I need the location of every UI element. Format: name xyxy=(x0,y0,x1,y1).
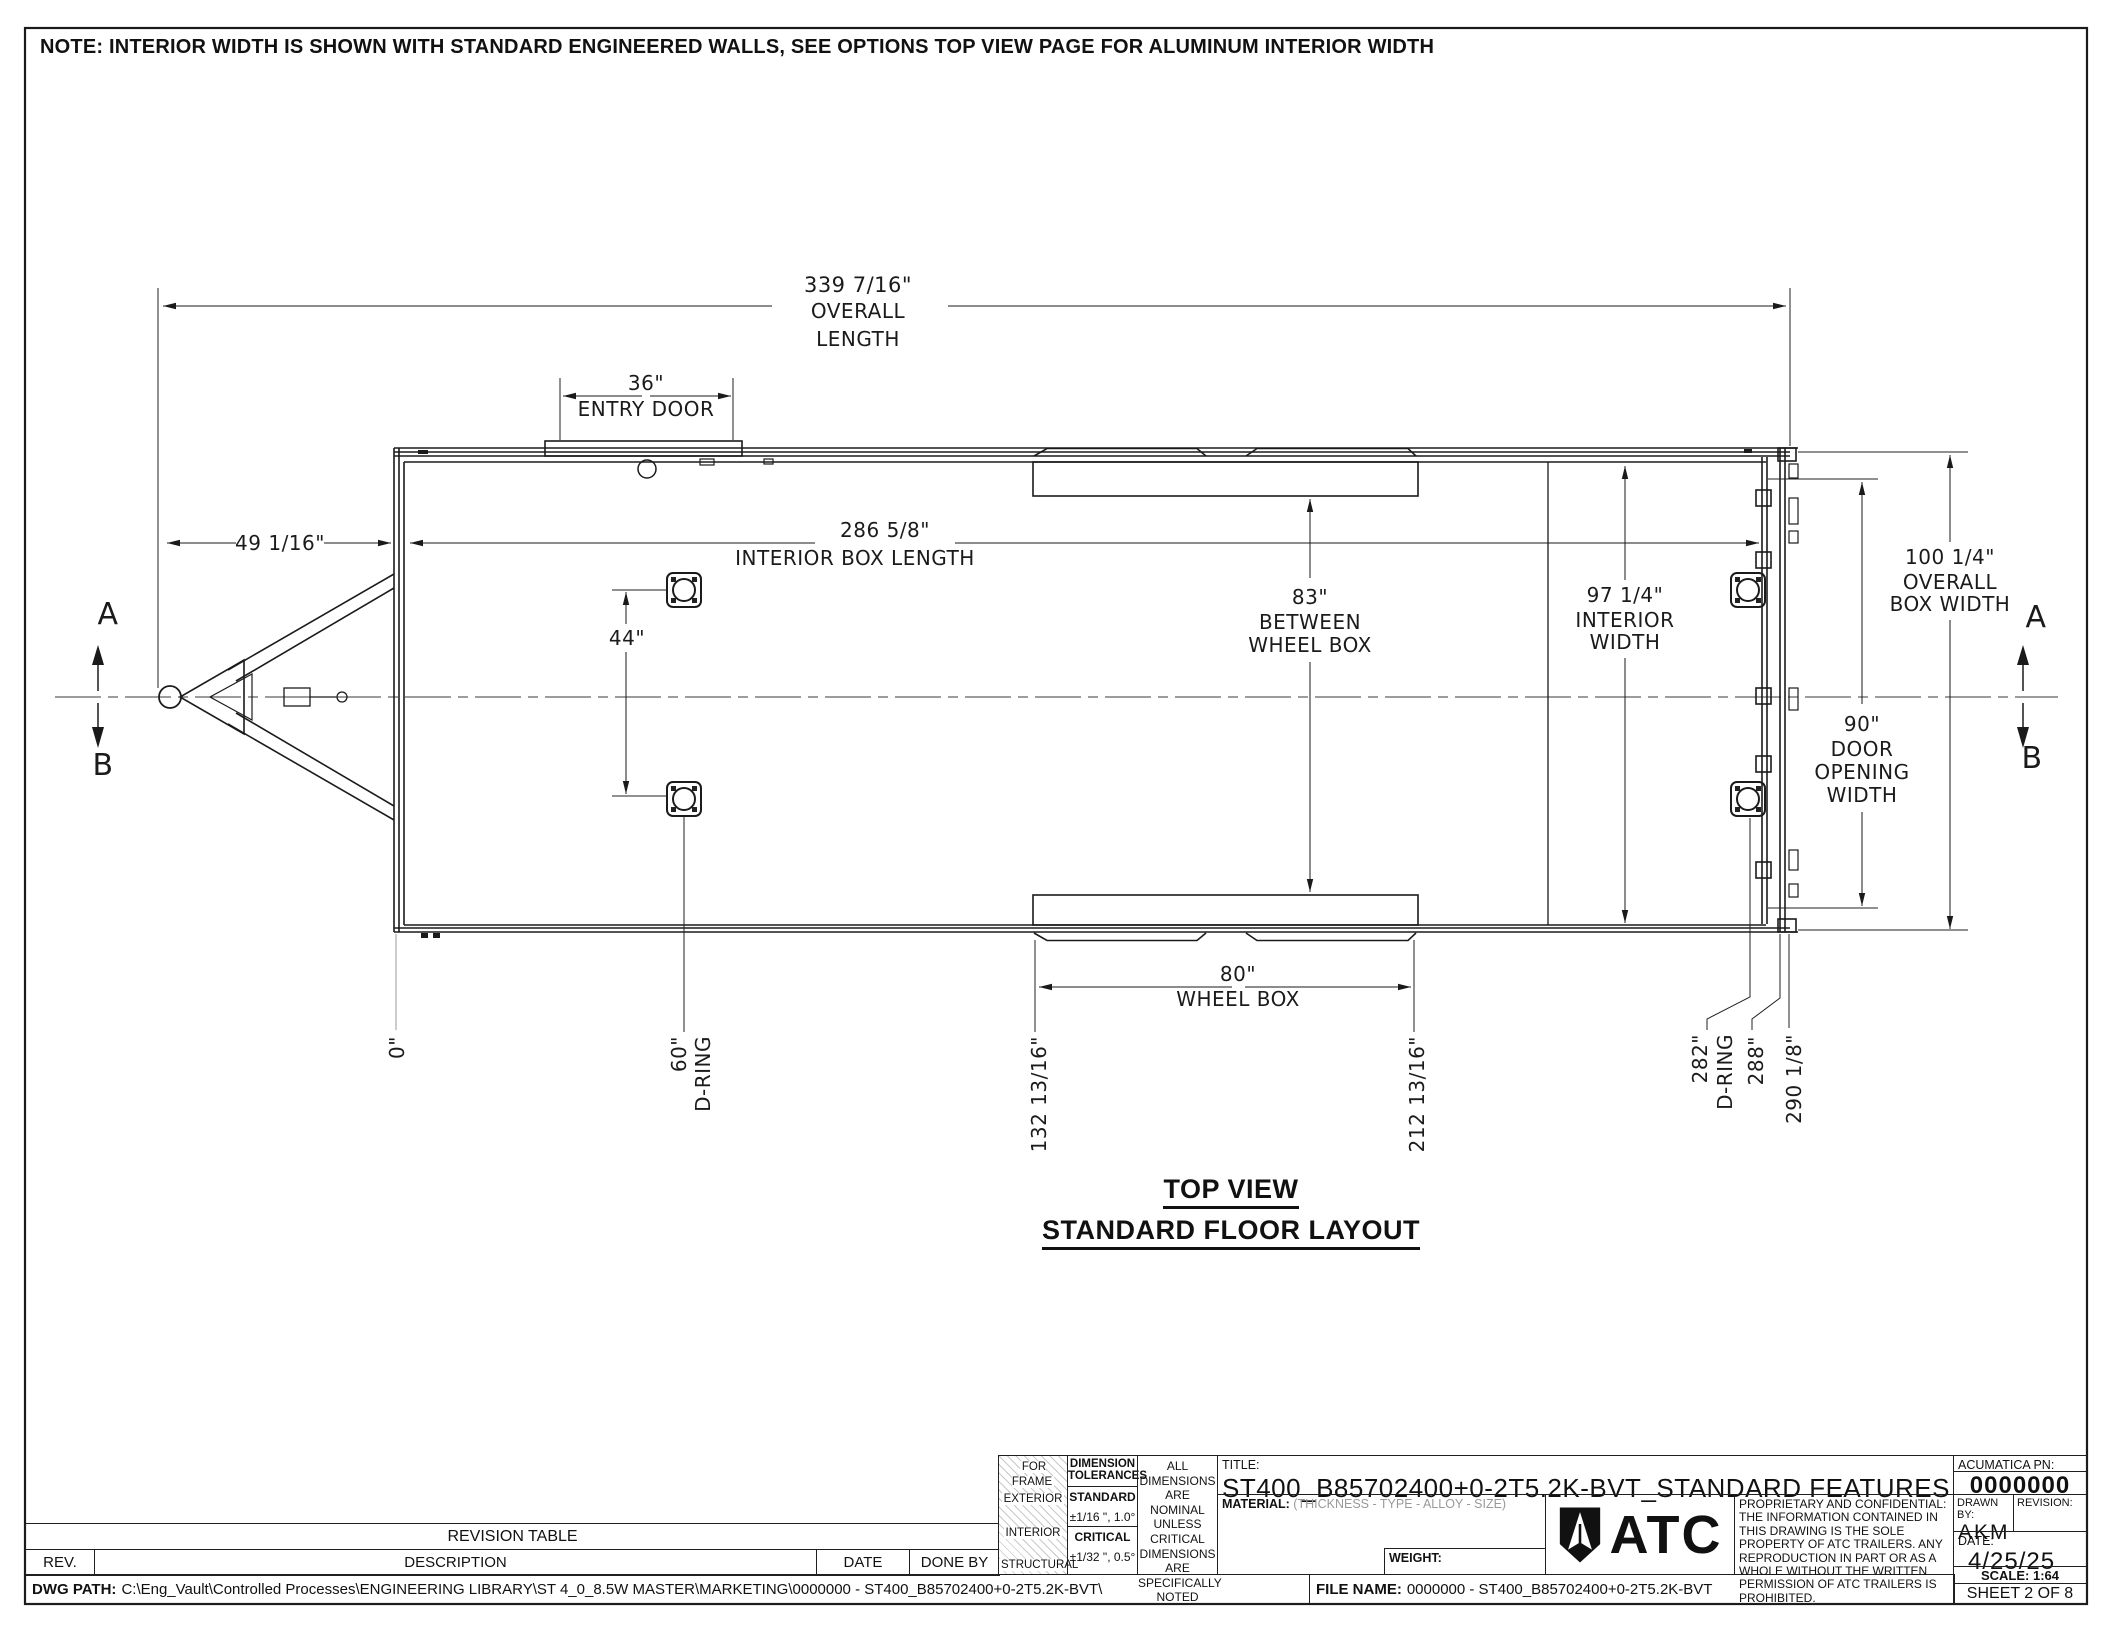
frame-finish-column: FOR FRAME EXTERIOR INTERIOR STRUCTURAL xyxy=(998,1455,1068,1575)
scale-cell: SCALE: 1:64 xyxy=(1953,1566,2087,1584)
dim-door-opening-label1: DOOR xyxy=(1831,737,1894,761)
dwg-path-value: C:\Eng_Vault\Controlled Processes\ENGINE… xyxy=(121,1581,1102,1598)
wheel-boxes xyxy=(1033,449,1418,941)
section-a-label: A xyxy=(97,597,118,632)
dim-dring-span-value: 44" xyxy=(609,626,645,650)
tolerance-standard-label: STANDARD xyxy=(1068,1487,1137,1507)
dim-overall-width-label1: OVERALL xyxy=(1903,570,1998,594)
title-label: TITLE: xyxy=(1218,1456,1953,1472)
sheet-number-cell: SHEET 2 OF 8 xyxy=(1953,1583,2087,1604)
trailer-body xyxy=(394,448,1798,932)
station-dring-rear-label: D-RING xyxy=(1713,1034,1737,1110)
d-ring-icon xyxy=(667,782,701,816)
d-ring-icon xyxy=(1731,782,1765,816)
dim-interior-width-value: 97 1/4" xyxy=(1587,583,1664,607)
section-a-label: A xyxy=(2025,600,2046,635)
dim-overall-width-value: 100 1/4" xyxy=(1905,545,1995,569)
dim-overall-length-label1: OVERALL xyxy=(811,299,906,323)
dim-between-wheelbox-label2: WHEEL BOX xyxy=(1248,633,1372,657)
revision-col-description: DESCRIPTION xyxy=(94,1549,817,1576)
dim-between-wheelbox-value: 83" xyxy=(1292,585,1328,609)
entry-door xyxy=(545,441,773,478)
station-wheelbox-front-label: 132 13/16" xyxy=(1027,1036,1051,1152)
atc-logo-text: ATC xyxy=(1610,1504,1723,1566)
revision-table-title: REVISION TABLE xyxy=(25,1523,1000,1550)
view-title-line1: TOP VIEW xyxy=(1163,1174,1298,1209)
sheet-note: NOTE: INTERIOR WIDTH IS SHOWN WITH STAND… xyxy=(40,36,1434,59)
revision-label: REVISION: xyxy=(2014,1495,2086,1509)
tolerances-column: DIMENSION TOLERANCES STANDARD ±1/16 ", 1… xyxy=(1067,1455,1138,1575)
view-title: TOP VIEW STANDARD FLOOR LAYOUT xyxy=(1031,1174,1431,1250)
extension-lines xyxy=(158,288,1968,1032)
revision-cell: REVISION: xyxy=(2013,1494,2087,1532)
nominal-note-cell: ALL DIMENSIONS ARE NOMINAL UNLESS CRITIC… xyxy=(1137,1455,1218,1575)
dim-interior-width-label2: WIDTH xyxy=(1590,630,1661,654)
drawing-sheet: A B A B 339 7/16" OVERALL LENGTH 36" ENT… xyxy=(0,0,2112,1632)
atc-shield-icon xyxy=(1558,1505,1602,1565)
section-markers: A B A B xyxy=(92,597,2047,783)
drawn-by-cell: DRAWN BY: AKM xyxy=(1953,1494,2014,1532)
dimension-lines xyxy=(163,306,1950,987)
frame-interior-label: INTERIOR xyxy=(1004,1527,1063,1539)
view-title-line2: STANDARD FLOOR LAYOUT xyxy=(1042,1215,1420,1250)
tolerance-critical-label: CRITICAL xyxy=(1068,1527,1137,1547)
dim-interior-width-label1: INTERIOR xyxy=(1575,608,1674,632)
station-zero-label: 0" xyxy=(385,1036,409,1059)
date-cell: DATE: 4/25/25 xyxy=(1953,1531,2087,1567)
station-labels: 0" 60" D-RING 132 13/16" 212 13/16" 282"… xyxy=(385,1034,1806,1152)
for-frame-label: FOR FRAME xyxy=(1012,1461,1054,1488)
dim-entry-door-value: 36" xyxy=(628,371,664,395)
logo-cell: ATC xyxy=(1545,1494,1735,1575)
dim-overall-length-label2: LENGTH xyxy=(816,327,900,351)
d-ring-icon xyxy=(667,573,701,607)
dwg-path-label: DWG PATH: xyxy=(32,1581,116,1598)
dim-door-opening-label3: WIDTH xyxy=(1827,783,1898,807)
dim-between-wheelbox-label1: BETWEEN xyxy=(1259,610,1361,634)
station-288-label: 288" xyxy=(1744,1036,1768,1085)
dim-wheelbox-value: 80" xyxy=(1220,962,1256,986)
dim-overall-width-label2: BOX WIDTH xyxy=(1890,592,2011,616)
dim-tongue-value: 49 1/16" xyxy=(235,531,325,555)
dim-overall-length-value: 339 7/16" xyxy=(804,273,912,297)
dim-interior-length-label: INTERIOR BOX LENGTH xyxy=(735,546,975,570)
section-b-label: B xyxy=(2021,741,2042,776)
dim-entry-door-label: ENTRY DOOR xyxy=(578,397,715,421)
proprietary-cell: PROPRIETARY AND CONFIDENTIAL: THE INFORM… xyxy=(1734,1494,1954,1575)
drawn-by-label: DRAWN BY: xyxy=(1954,1495,2013,1521)
dim-door-opening-label2: OPENING xyxy=(1814,760,1909,784)
dim-door-opening-value: 90" xyxy=(1844,712,1880,736)
trailer-top-view-drawing: A B A B 339 7/16" OVERALL LENGTH 36" ENT… xyxy=(0,0,2112,1632)
acumatica-label: ACUMATICA PN: xyxy=(1953,1455,2087,1472)
revision-col-done-by: DONE BY xyxy=(909,1549,1000,1576)
file-name-label: FILE NAME: xyxy=(1316,1581,1402,1598)
material-label: MATERIAL: xyxy=(1222,1497,1290,1511)
revision-col-date: DATE xyxy=(816,1549,910,1576)
dimension-labels: 339 7/16" OVERALL LENGTH 36" ENTRY DOOR … xyxy=(235,273,2010,1011)
tolerance-standard-value: ±1/16 ", 1.0° xyxy=(1068,1507,1137,1527)
dim-interior-length-value: 286 5/8" xyxy=(840,518,930,542)
acumatica-value: 0000000 xyxy=(1953,1471,2087,1495)
station-290-label: 290 1/8" xyxy=(1782,1034,1806,1124)
station-dring-front-value: 60" xyxy=(667,1036,691,1072)
material-value: (THICKNESS - TYPE - ALLOY - SIZE) xyxy=(1293,1497,1506,1511)
tolerances-header: DIMENSION TOLERANCES xyxy=(1068,1456,1137,1487)
date-label: DATE: xyxy=(1954,1532,2086,1548)
dwg-path-cell: DWG PATH: C:\Eng_Vault\Controlled Proces… xyxy=(25,1574,1310,1604)
file-name-value: 0000000 - ST400_B85702400+0-2T5.2K-BVT xyxy=(1407,1581,1713,1598)
sheet-border xyxy=(25,28,2087,1604)
d-ring-icon xyxy=(1731,573,1765,607)
weight-label: WEIGHT: xyxy=(1385,1549,1545,1565)
station-dring-front-label: D-RING xyxy=(691,1036,715,1112)
station-wheelbox-rear-label: 212 13/16" xyxy=(1405,1036,1429,1152)
weight-cell: WEIGHT: xyxy=(1384,1548,1546,1575)
station-dring-rear-value: 282" xyxy=(1688,1034,1712,1083)
section-b-label: B xyxy=(92,748,113,783)
frame-ticks xyxy=(418,449,1752,938)
title-cell: TITLE: ST400_B85702400+0-2T5.2K-BVT_STAN… xyxy=(1217,1455,1954,1495)
tolerance-critical-value: ±1/32 ", 0.5° xyxy=(1068,1547,1137,1567)
frame-exterior-label: EXTERIOR xyxy=(1002,1493,1065,1505)
revision-col-rev: REV. xyxy=(25,1549,95,1576)
dim-wheelbox-label: WHEEL BOX xyxy=(1176,987,1300,1011)
